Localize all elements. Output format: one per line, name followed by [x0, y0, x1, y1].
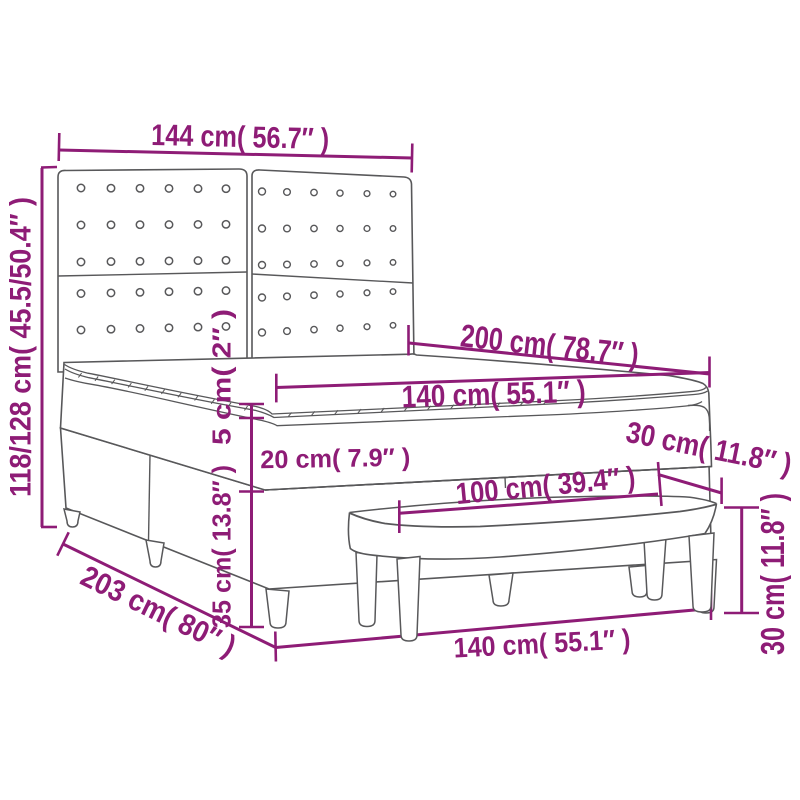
svg-text:35 cm( 13.8″ ): 35 cm( 13.8″ )	[207, 465, 237, 628]
svg-text:30 cm( 11.8″ ): 30 cm( 11.8″ )	[754, 493, 791, 655]
svg-text:144 cm( 56.7″ ): 144 cm( 56.7″ )	[151, 119, 330, 156]
svg-text:20 cm( 7.9″ ): 20 cm( 7.9″ )	[260, 444, 410, 475]
svg-text:118/128 cm( 45.5/50.4″ ): 118/128 cm( 45.5/50.4″ )	[5, 197, 38, 497]
svg-text:5 cm( 2″ ): 5 cm( 2″ )	[207, 309, 237, 445]
svg-text:140 cm( 55.1″ ): 140 cm( 55.1″ )	[401, 374, 586, 415]
